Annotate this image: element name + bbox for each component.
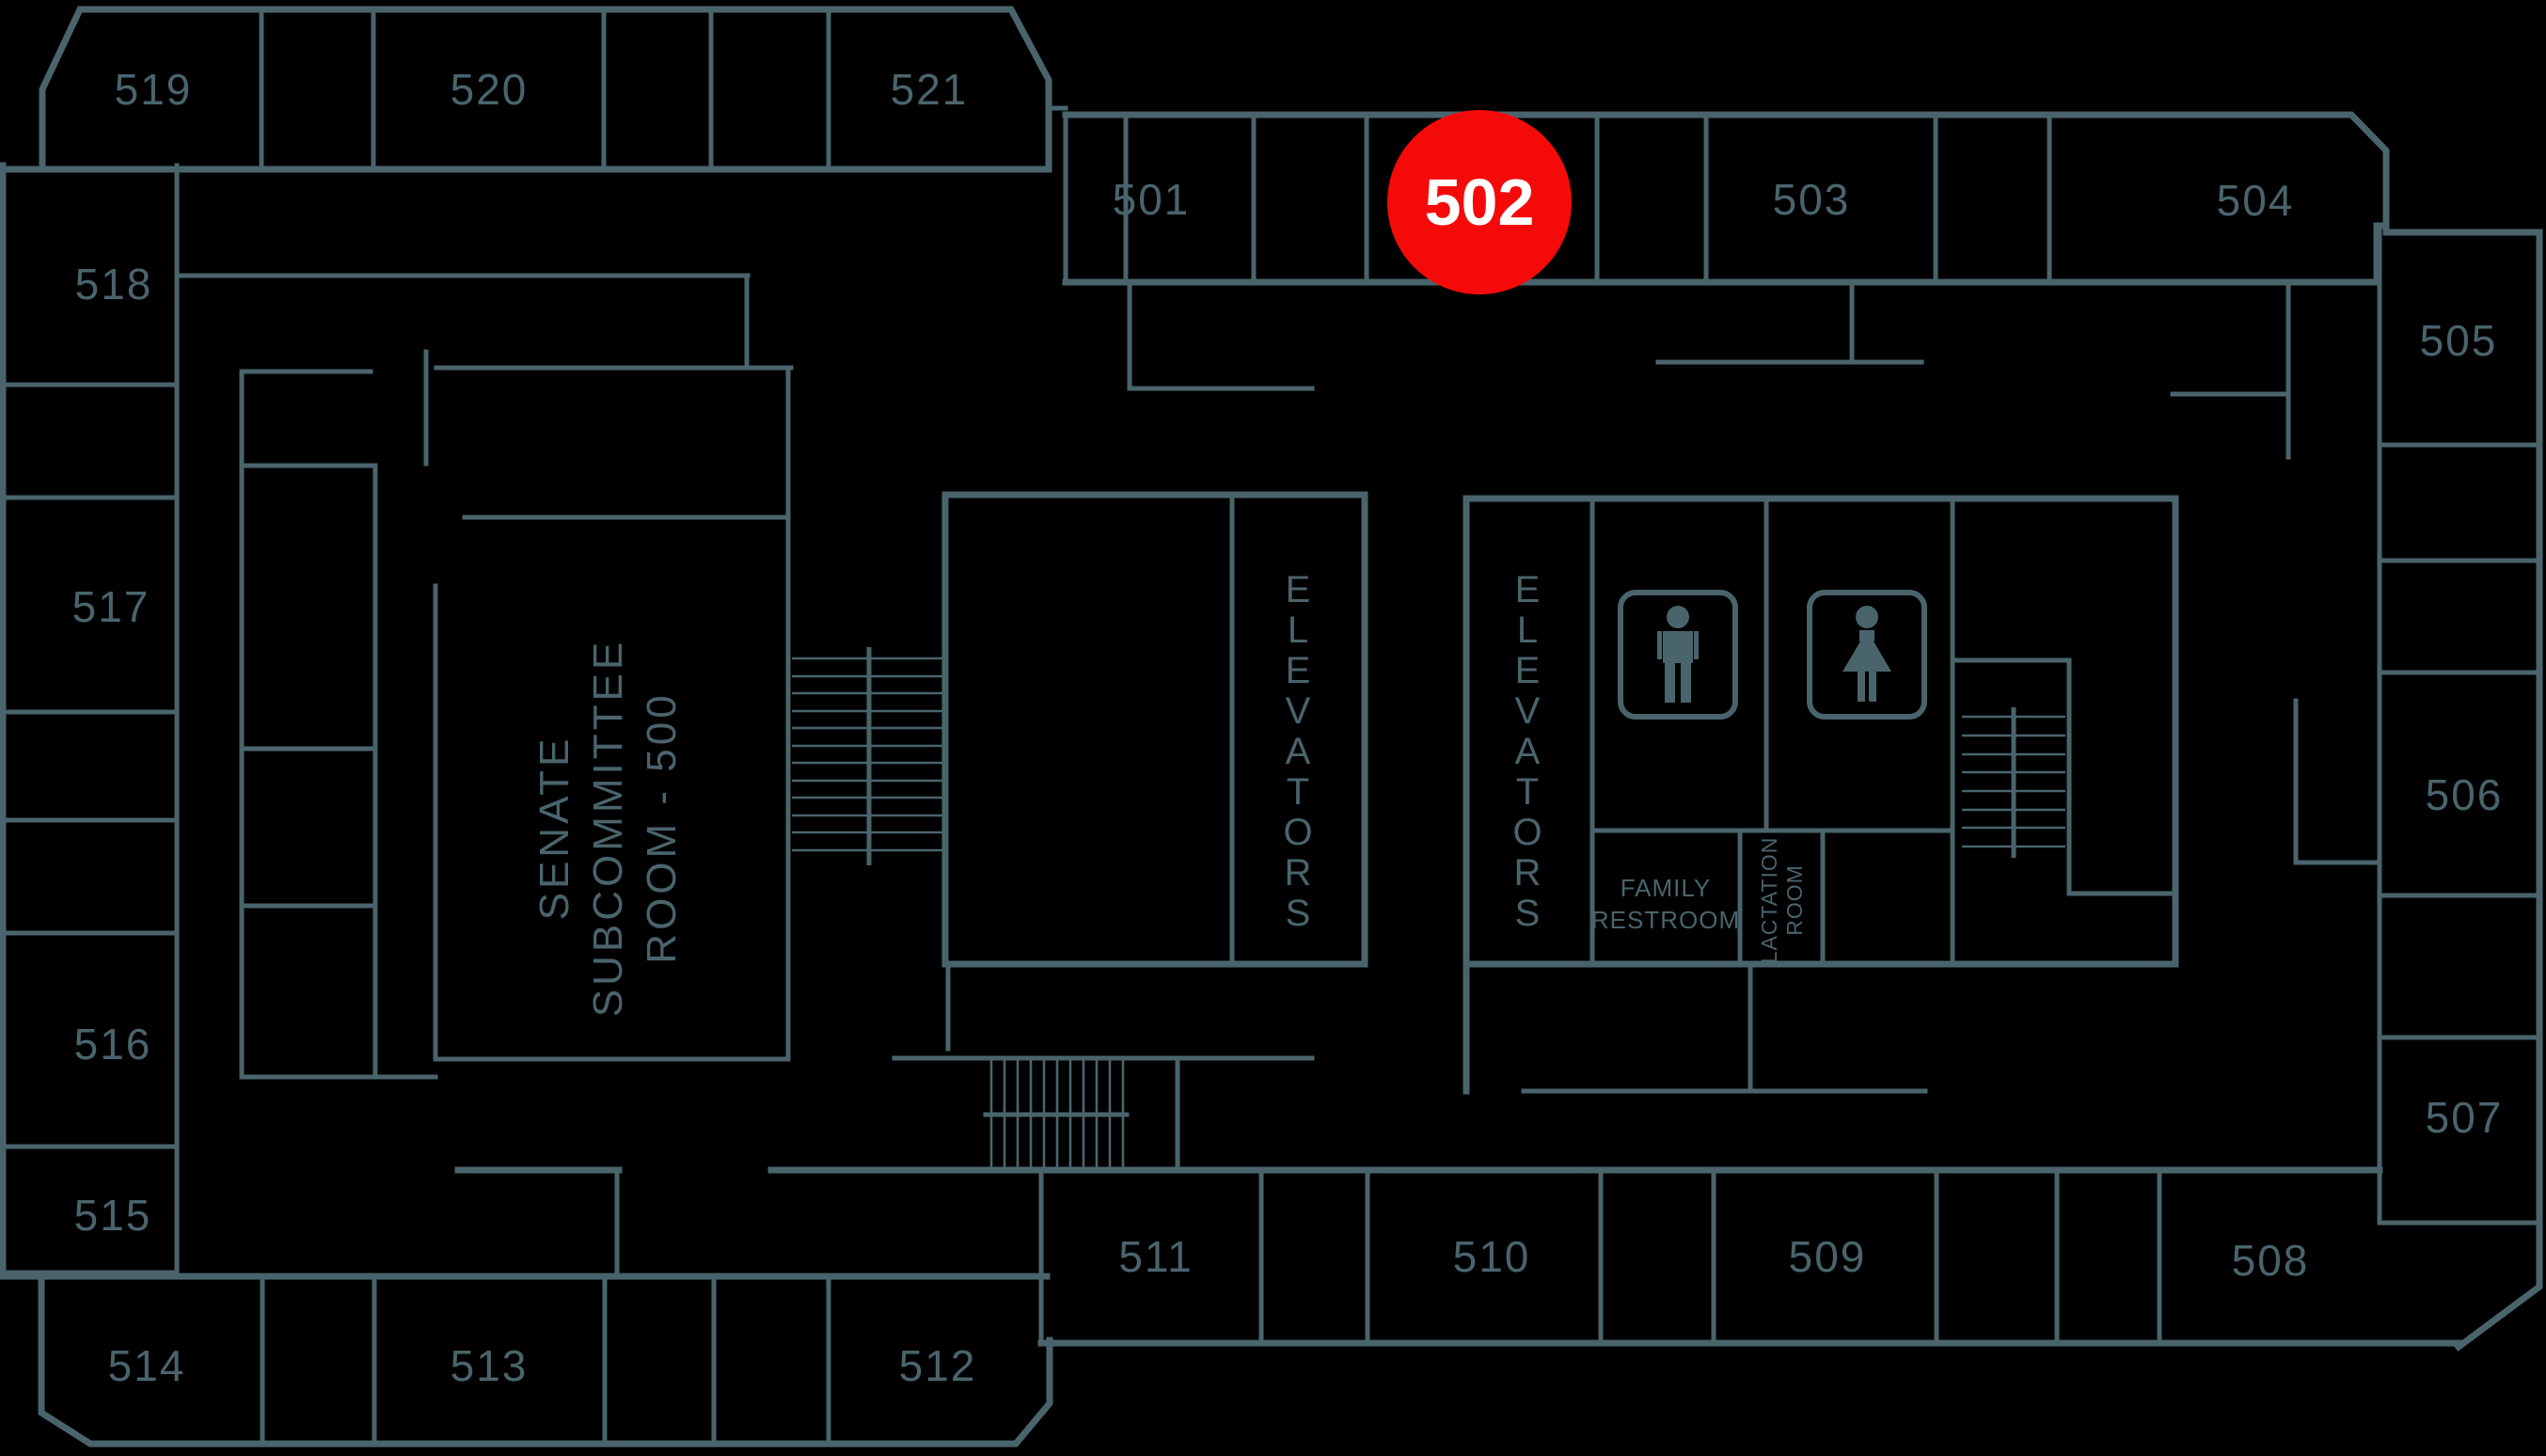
svg-text:SUBCOMMITTEE: SUBCOMMITTEE bbox=[585, 639, 631, 1017]
room-label-511: 511 bbox=[1118, 1232, 1193, 1281]
inner-walls bbox=[181, 276, 2377, 1170]
room-label-505: 505 bbox=[2420, 316, 2498, 365]
elevators-label-right: ELEVATORS bbox=[1512, 569, 1542, 934]
svg-text:LACTATION: LACTATION bbox=[1757, 837, 1781, 964]
womens-restroom-icon bbox=[1810, 593, 1924, 717]
room-label-516: 516 bbox=[74, 1020, 152, 1068]
svg-text:ROOM: ROOM bbox=[1782, 864, 1807, 936]
senate-subcommittee-room-label: SENATE SUBCOMMITTEE ROOM - 500 bbox=[531, 639, 685, 1017]
stairs-upper-center bbox=[792, 647, 943, 865]
room-label-504: 504 bbox=[2217, 176, 2295, 225]
room-label-517: 517 bbox=[72, 582, 150, 631]
svg-text:RESTROOM: RESTROOM bbox=[1591, 906, 1740, 934]
room-label-519: 519 bbox=[115, 65, 193, 114]
room-label-518: 518 bbox=[75, 260, 153, 309]
room-label-521: 521 bbox=[891, 65, 969, 114]
room-label-506: 506 bbox=[2426, 770, 2504, 819]
svg-text:SENATE: SENATE bbox=[531, 736, 577, 921]
room-label-510: 510 bbox=[1453, 1232, 1531, 1281]
family-restroom-label: FAMILY RESTROOM bbox=[1591, 874, 1740, 934]
svg-text:FAMILY: FAMILY bbox=[1621, 874, 1712, 902]
room-label-520: 520 bbox=[451, 65, 529, 114]
room-label-514: 514 bbox=[108, 1341, 186, 1390]
room-label-508: 508 bbox=[2232, 1236, 2310, 1285]
floor-plan: 519 520 521 501 503 504 505 506 507 508 … bbox=[0, 0, 2546, 1456]
outer-walls bbox=[3, 9, 2539, 1444]
elevators-label-center: ELEVATORS bbox=[1283, 569, 1312, 934]
room-label-515: 515 bbox=[74, 1191, 152, 1240]
room-502-marker[interactable]: 502 bbox=[1387, 110, 1572, 294]
room-label-501: 501 bbox=[1113, 175, 1191, 224]
room-label-503: 503 bbox=[1773, 175, 1851, 224]
lactation-room-label: LACTATION ROOM bbox=[1757, 837, 1807, 964]
room-label-513: 513 bbox=[451, 1341, 529, 1390]
room-label-507: 507 bbox=[2426, 1093, 2504, 1142]
room-label-512: 512 bbox=[899, 1341, 977, 1390]
room-label-509: 509 bbox=[1789, 1232, 1867, 1281]
stairs-right-block bbox=[1962, 707, 2065, 858]
svg-text:ROOM - 500: ROOM - 500 bbox=[639, 691, 685, 963]
marker-label: 502 bbox=[1425, 166, 1535, 239]
floor-plan-svg: 519 520 521 501 503 504 505 506 507 508 … bbox=[0, 0, 2546, 1456]
mens-restroom-icon bbox=[1621, 593, 1735, 717]
